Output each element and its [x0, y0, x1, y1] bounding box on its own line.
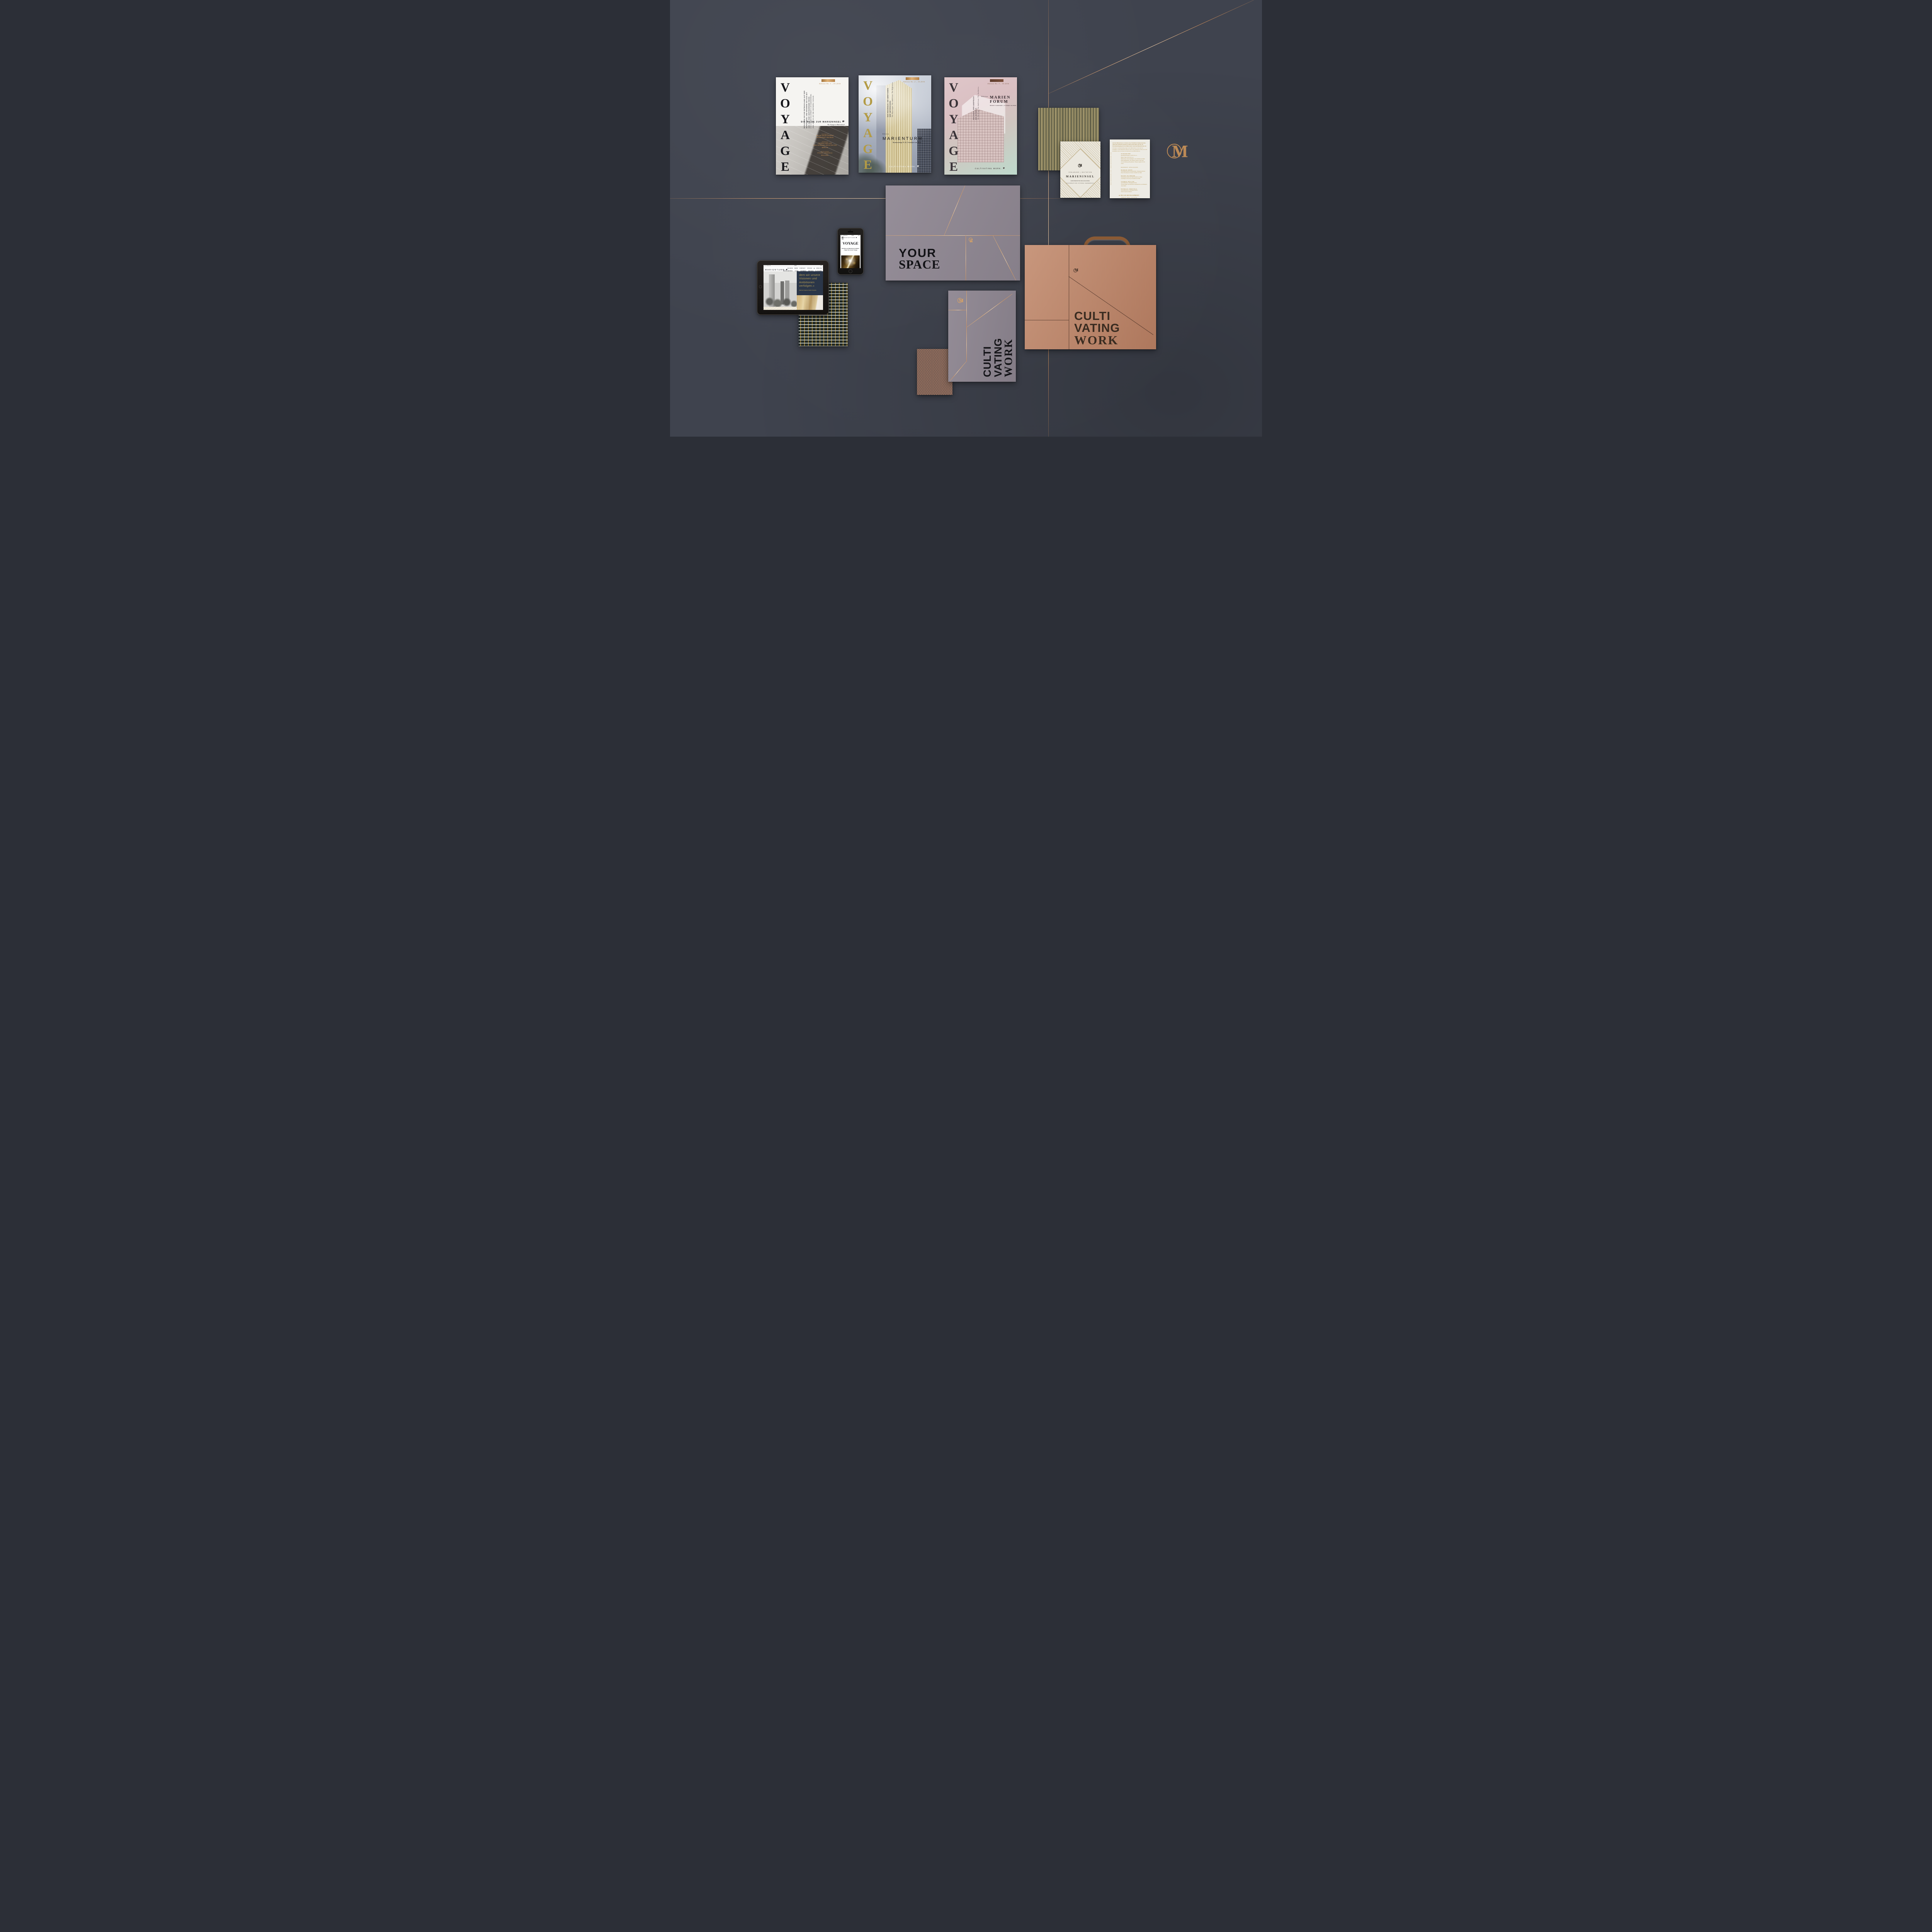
- m-monogram-icon: [917, 165, 919, 167]
- presentation-box: CULTI VATING WORK: [1025, 245, 1156, 349]
- m-monogram-icon: [1073, 268, 1079, 273]
- ipad-screen: ●●●○○ Telekom.de 12:30 100% MARIENTURM G…: [764, 265, 823, 310]
- nav-english: ENGLISH: [816, 268, 822, 269]
- speaker-entry: PATRICIA URQUIOLA Geschäftsführerin | Ma…: [1121, 188, 1147, 193]
- nav-galerie: GALERIE: [787, 268, 793, 269]
- iphone: ●●●○○ Telekom.de 12:30 100% MARIENTURM V…: [837, 228, 864, 275]
- m-monogram-icon: [856, 237, 857, 238]
- magazine3-tagline: DAS HAUS. DER ANSPRUCH. DIE ÄSTHETIK. Th…: [973, 86, 980, 120]
- folder-foil-line: [886, 235, 1020, 236]
- cultivating-work-footer: CULTIVATING WORK.: [968, 167, 1012, 169]
- ipad: ●●●○○ Telekom.de 12:30 100% MARIENTURM G…: [757, 260, 829, 315]
- iphone-article-photo: [841, 255, 860, 268]
- folder-foil-line: [966, 294, 1012, 328]
- folder-foil-line: [966, 235, 966, 281]
- voyage-magazine-edition2: VOYAGE Edition No. 2 – 10.2016 DAS HOCHH…: [859, 75, 931, 173]
- your-space-folder: YOUR SPACE: [886, 185, 1020, 281]
- your-space-title: YOUR SPACE: [899, 247, 940, 270]
- diagonal-pattern-strip: [764, 307, 797, 310]
- magazine3-project-block: Edition MARIENFORUM Mainzer Landstraße 1…: [981, 96, 1016, 106]
- cultivating-work-title: CULTI VATING WORK: [1074, 310, 1120, 346]
- m-monogram-icon: [1003, 167, 1005, 169]
- m-monogram-icon: [968, 238, 973, 243]
- copper-foil-bar: [906, 77, 919, 80]
- quote-panel: dem wir unsere Visionen und Ambitionen v…: [797, 271, 823, 295]
- m-monogram-icon: [957, 298, 964, 304]
- copper-foil-bar: [821, 79, 835, 82]
- edition-number: Edition No. 3 – 10.2016: [988, 83, 1009, 85]
- magazine1-tagline: BEGLEITEN SIE DIE ENTWICKLUNG AUF DER MA…: [804, 90, 815, 128]
- voyage-headline: VOYAGE: [840, 242, 861, 246]
- pecan-development-logo: ☙ PECAN DEVELOPMENT: [1119, 194, 1147, 196]
- cultivating-work-footer: CULTIVATING WORK.: [883, 165, 926, 167]
- flatlay-scene: M VOYAGE Edition No. 1 – 01.2016 BEGLEIT…: [670, 0, 1262, 437]
- ipad-home-button: [759, 285, 762, 288]
- box-line: [1069, 245, 1069, 349]
- voyage-magazine-edition3: VOYAGE Edition No. 3 – 10.2016 DAS HAUS.…: [944, 77, 1017, 175]
- voyage-title: VOYAGE: [779, 81, 791, 175]
- monogram-letter: M: [1172, 142, 1188, 161]
- copper-mesh-swatch: [917, 349, 952, 395]
- m-monogram-icon: [1078, 163, 1083, 168]
- nav-kontakt: KONTAKT: [799, 268, 805, 269]
- speaker-entry: MARKUS BROD Geschäftsführender Gesellsch…: [1121, 169, 1147, 174]
- iphone-camera: [850, 230, 851, 231]
- leaf-icon: ☙: [1119, 194, 1120, 196]
- folder-foil-line: [944, 185, 965, 236]
- invitation-card-back: Auf der Marieninsel, im Herzen des Frank…: [1110, 139, 1150, 198]
- folder-foil-line: [948, 310, 966, 310]
- nav-news: NEWS: [794, 268, 798, 269]
- location-pin-icon: ◉: [814, 268, 815, 269]
- box-line: [1025, 320, 1069, 320]
- speaker-entry: PETER FELDMANN Oberbürgermeister der Sta…: [1121, 175, 1147, 180]
- voyage-title: VOYAGE: [861, 79, 874, 173]
- cultivating-work-folder: CULTI VATING WORK: [948, 291, 1016, 382]
- nav-voyage: VOYAGE: [807, 268, 812, 269]
- invitation-card-front: EINLADUNG | INVITATION MARIENINSEL GRUND…: [1060, 141, 1100, 198]
- interior-mesh-photo: [797, 295, 823, 310]
- speaker-entry: THOMAS MÜLLER Geschäftsführer | Managing…: [1121, 181, 1147, 187]
- edition-number: Edition No. 1 – 01.2016: [819, 83, 841, 85]
- iphone-home-button: [849, 269, 852, 273]
- iphone-screen: ●●●○○ Telekom.de 12:30 100% MARIENTURM V…: [840, 235, 861, 268]
- magazine1-credits: Development PECAN DEVELOPMENT FRANKFURT …: [810, 131, 840, 156]
- wall-monogram: M: [1167, 142, 1188, 161]
- folder-foil-line: [966, 291, 967, 327]
- skyline-photo: [764, 271, 797, 310]
- m-monogram-icon: [842, 121, 845, 122]
- hamburger-menu-icon: [842, 237, 844, 239]
- folder-foil-line: [966, 327, 967, 362]
- cultivating-work-title: CULTI VATING WORK: [982, 338, 1015, 377]
- folder-foil-line: [950, 361, 966, 381]
- voyage-magazine-edition1: VOYAGE Edition No. 1 – 01.2016 BEGLEITEN…: [776, 77, 849, 175]
- edition-number: Edition No. 2 – 10.2016: [903, 81, 925, 83]
- wall-line-diagonal: [1048, 0, 1254, 94]
- magazine2-tagline: DAS HOCHHAUS. DIE AMBITIONEN. DER UNTERS…: [887, 82, 894, 117]
- folder-foil-line: [993, 235, 1016, 281]
- copper-foil-bar: [990, 79, 1003, 82]
- websites: www.marienturm.com | www.marienforum.com: [1111, 152, 1112, 185]
- magazine2-project-block: Edition MARIENTURM Taunusanlage 9–10, Fr…: [883, 129, 923, 143]
- wall-line-vertical: [1048, 0, 1049, 437]
- iphone-speaker: [848, 231, 853, 232]
- voyage-title: VOYAGE: [947, 81, 960, 175]
